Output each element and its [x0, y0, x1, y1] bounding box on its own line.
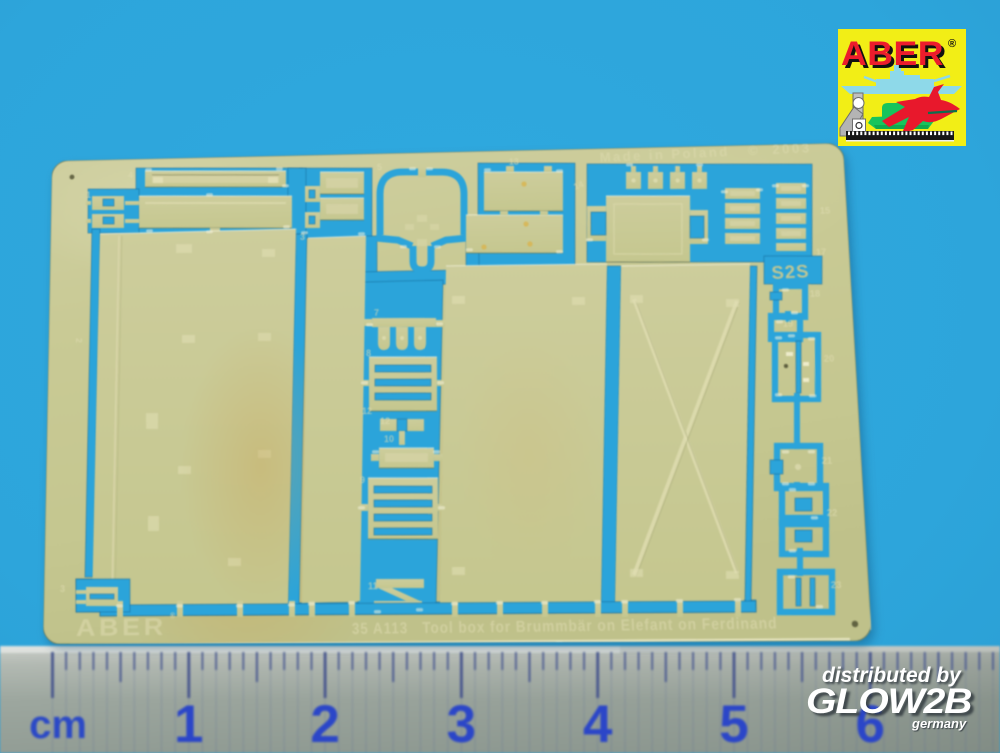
svg-text:1: 1	[174, 695, 203, 753]
svg-text:7: 7	[374, 307, 379, 318]
svg-text:4: 4	[583, 695, 613, 753]
svg-text:22: 22	[827, 507, 838, 518]
svg-text:3: 3	[447, 695, 476, 753]
svg-text:1: 1	[86, 190, 91, 200]
svg-text:cm: cm	[29, 703, 87, 747]
svg-text:4: 4	[128, 170, 133, 180]
svg-text:S2S: S2S	[771, 260, 811, 283]
svg-text:2: 2	[74, 338, 84, 343]
svg-text:®: ®	[170, 611, 175, 620]
svg-text:15: 15	[820, 205, 831, 216]
svg-text:18: 18	[809, 288, 820, 299]
svg-text:ABER: ABER	[76, 613, 167, 642]
svg-text:5: 5	[719, 695, 748, 753]
svg-text:21: 21	[821, 455, 832, 466]
svg-text:19: 19	[783, 318, 794, 329]
svg-text:17: 17	[816, 246, 827, 257]
svg-text:5: 5	[377, 162, 382, 172]
svg-text:23: 23	[831, 579, 843, 590]
svg-text:13: 13	[509, 157, 519, 168]
svg-text:ABER: ABER	[841, 35, 944, 73]
svg-text:12: 12	[362, 405, 372, 416]
svg-text:12: 12	[380, 415, 390, 426]
svg-text:8: 8	[366, 347, 371, 358]
svg-text:3: 3	[60, 583, 65, 594]
svg-text:20: 20	[824, 353, 835, 364]
svg-text:10: 10	[384, 433, 395, 444]
svg-text:2: 2	[310, 695, 339, 753]
svg-text:9: 9	[360, 474, 365, 485]
svg-text:®: ®	[948, 38, 956, 50]
svg-text:11: 11	[368, 580, 378, 591]
